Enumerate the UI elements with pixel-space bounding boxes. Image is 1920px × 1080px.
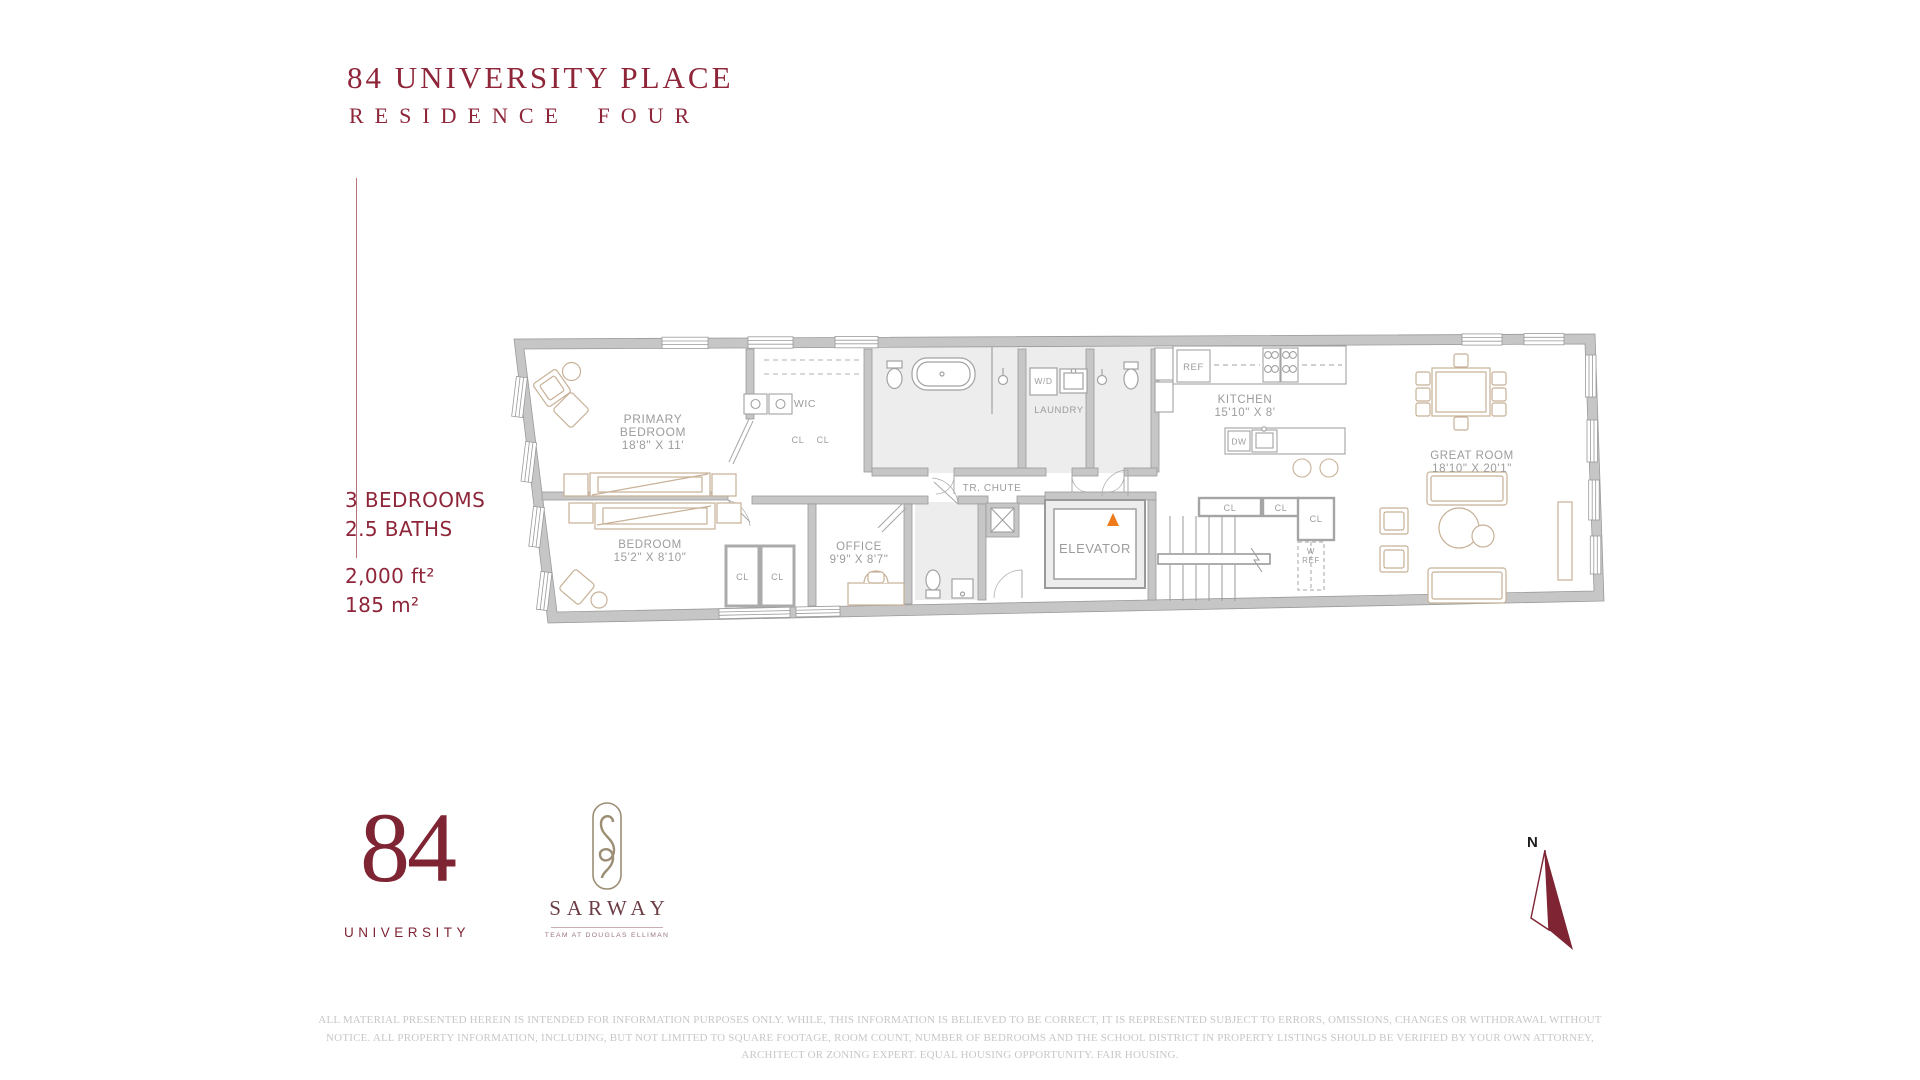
great-room-furniture [1380,354,1572,603]
disclaimer-line-3: ARCHITECT OR ZONING EXPERT. EQUAL HOUSIN… [0,1047,1920,1065]
bench [1558,502,1572,580]
sink [952,579,973,598]
nightstand [712,474,736,496]
closet-label: CL [817,435,830,445]
office-label: OFFICE [836,541,882,553]
great-room-label: GREAT ROOM [1430,450,1514,462]
floorplan-sheet: 84 UNIVERSITY PLACE RESIDENCE FOUR 3 BED… [0,0,1920,1080]
disclaimer: ALL MATERIAL PRESENTED HEREIN IS INTENDE… [0,1012,1920,1065]
area-sqft: 2,000 ft² [345,562,435,591]
stool [1293,459,1311,477]
svg-text:BEDROOM: BEDROOM [620,425,686,439]
range [1263,348,1298,382]
ref-label: REF [1183,362,1204,373]
sarway-name: SARWAY [542,896,678,921]
desk [848,583,904,605]
armchair [1380,508,1408,534]
sofa [1428,568,1506,603]
bathtub [912,358,975,390]
floorplan-drawing: PRIMARY BEDROOM 18'8" X 11' WIC CL CL BE… [502,322,1612,642]
kitchen-dims: 15'10" X 8' [1214,407,1275,419]
side-table [563,363,581,381]
bath-count: 2.5 BATHS [345,515,485,544]
great-room-dims: 18'10" X 20'1" [1432,463,1512,475]
stairs [1158,516,1270,601]
disclaimer-line-1: ALL MATERIAL PRESENTED HEREIN IS INTENDE… [0,1012,1920,1030]
wine-ref-label: W [1307,547,1315,556]
dressing-vanity [744,394,792,414]
page-title: 84 UNIVERSITY PLACE [347,60,734,96]
primary-bedroom-dims: 18'8" X 11' [622,438,685,452]
dw-label: DW [1231,437,1246,447]
unit-stats: 3 BEDROOMS 2.5 BATHS [345,486,485,544]
hall-closets [1199,498,1334,590]
sarway-monogram-icon [590,800,624,892]
sarway-tagline: TEAM AT DOUGLAS ELLIMAN [536,932,678,939]
stool [1320,459,1338,477]
unit-area: 2,000 ft² 185 m² [345,562,435,620]
closet-label: CL [771,572,784,582]
wd-label: W/D [1034,376,1052,386]
trash-chute [986,503,1019,537]
closet-label: CL [1275,503,1288,513]
primary-bedroom-label: PRIMARY [624,412,683,426]
elevator-label: ELEVATOR [1059,541,1131,556]
laundry-sink [1060,369,1087,393]
toilet [1124,362,1138,389]
coffee-table [1472,525,1494,547]
logo-university: UNIVERSITY [340,925,474,940]
office-furniture [848,571,904,605]
nightstand [569,503,593,523]
page-subtitle: RESIDENCE FOUR [349,103,700,129]
office-dims: 9'9" X 8'7" [830,554,889,566]
laundry-label: LAUNDRY [1034,405,1083,416]
closet-label: CL [1224,503,1237,513]
toilet [887,361,902,389]
bedroom-count: 3 BEDROOMS [345,486,485,515]
disclaimer-line-2: NOTICE. ALL PROPERTY INFORMATION, INCLUD… [0,1030,1920,1048]
tr-chute-label: TR. CHUTE [963,483,1022,494]
closet-label: CL [736,572,749,582]
bedroom-dims: 15'2" X 8'10" [614,552,687,564]
sarway-logo: SARWAY TEAM AT DOUGLAS ELLIMAN [536,800,678,939]
sarway-rule [551,927,663,928]
closet-label: CL [792,435,805,445]
armchair [559,569,596,606]
dining-table [1416,354,1506,430]
nightstand [564,474,588,496]
svg-text:REF: REF [1302,556,1320,565]
kitchen-label: KITCHEN [1218,394,1273,406]
wic-label: WIC [794,398,816,410]
nightstand [717,503,741,523]
coffee-table [1439,508,1479,548]
floorplan: PRIMARY BEDROOM 18'8" X 11' WIC CL CL BE… [502,322,1612,642]
toilet [926,570,940,598]
armchair [1380,546,1408,572]
bedroom-label: BEDROOM [618,539,682,551]
closet-label: CL [1310,514,1323,524]
north-arrow-icon [1518,846,1588,966]
area-sqm: 185 m² [345,591,435,620]
side-table [591,592,607,608]
sofa [1427,472,1507,505]
logo-84: 84 [344,798,470,898]
compass: N [1512,834,1602,964]
